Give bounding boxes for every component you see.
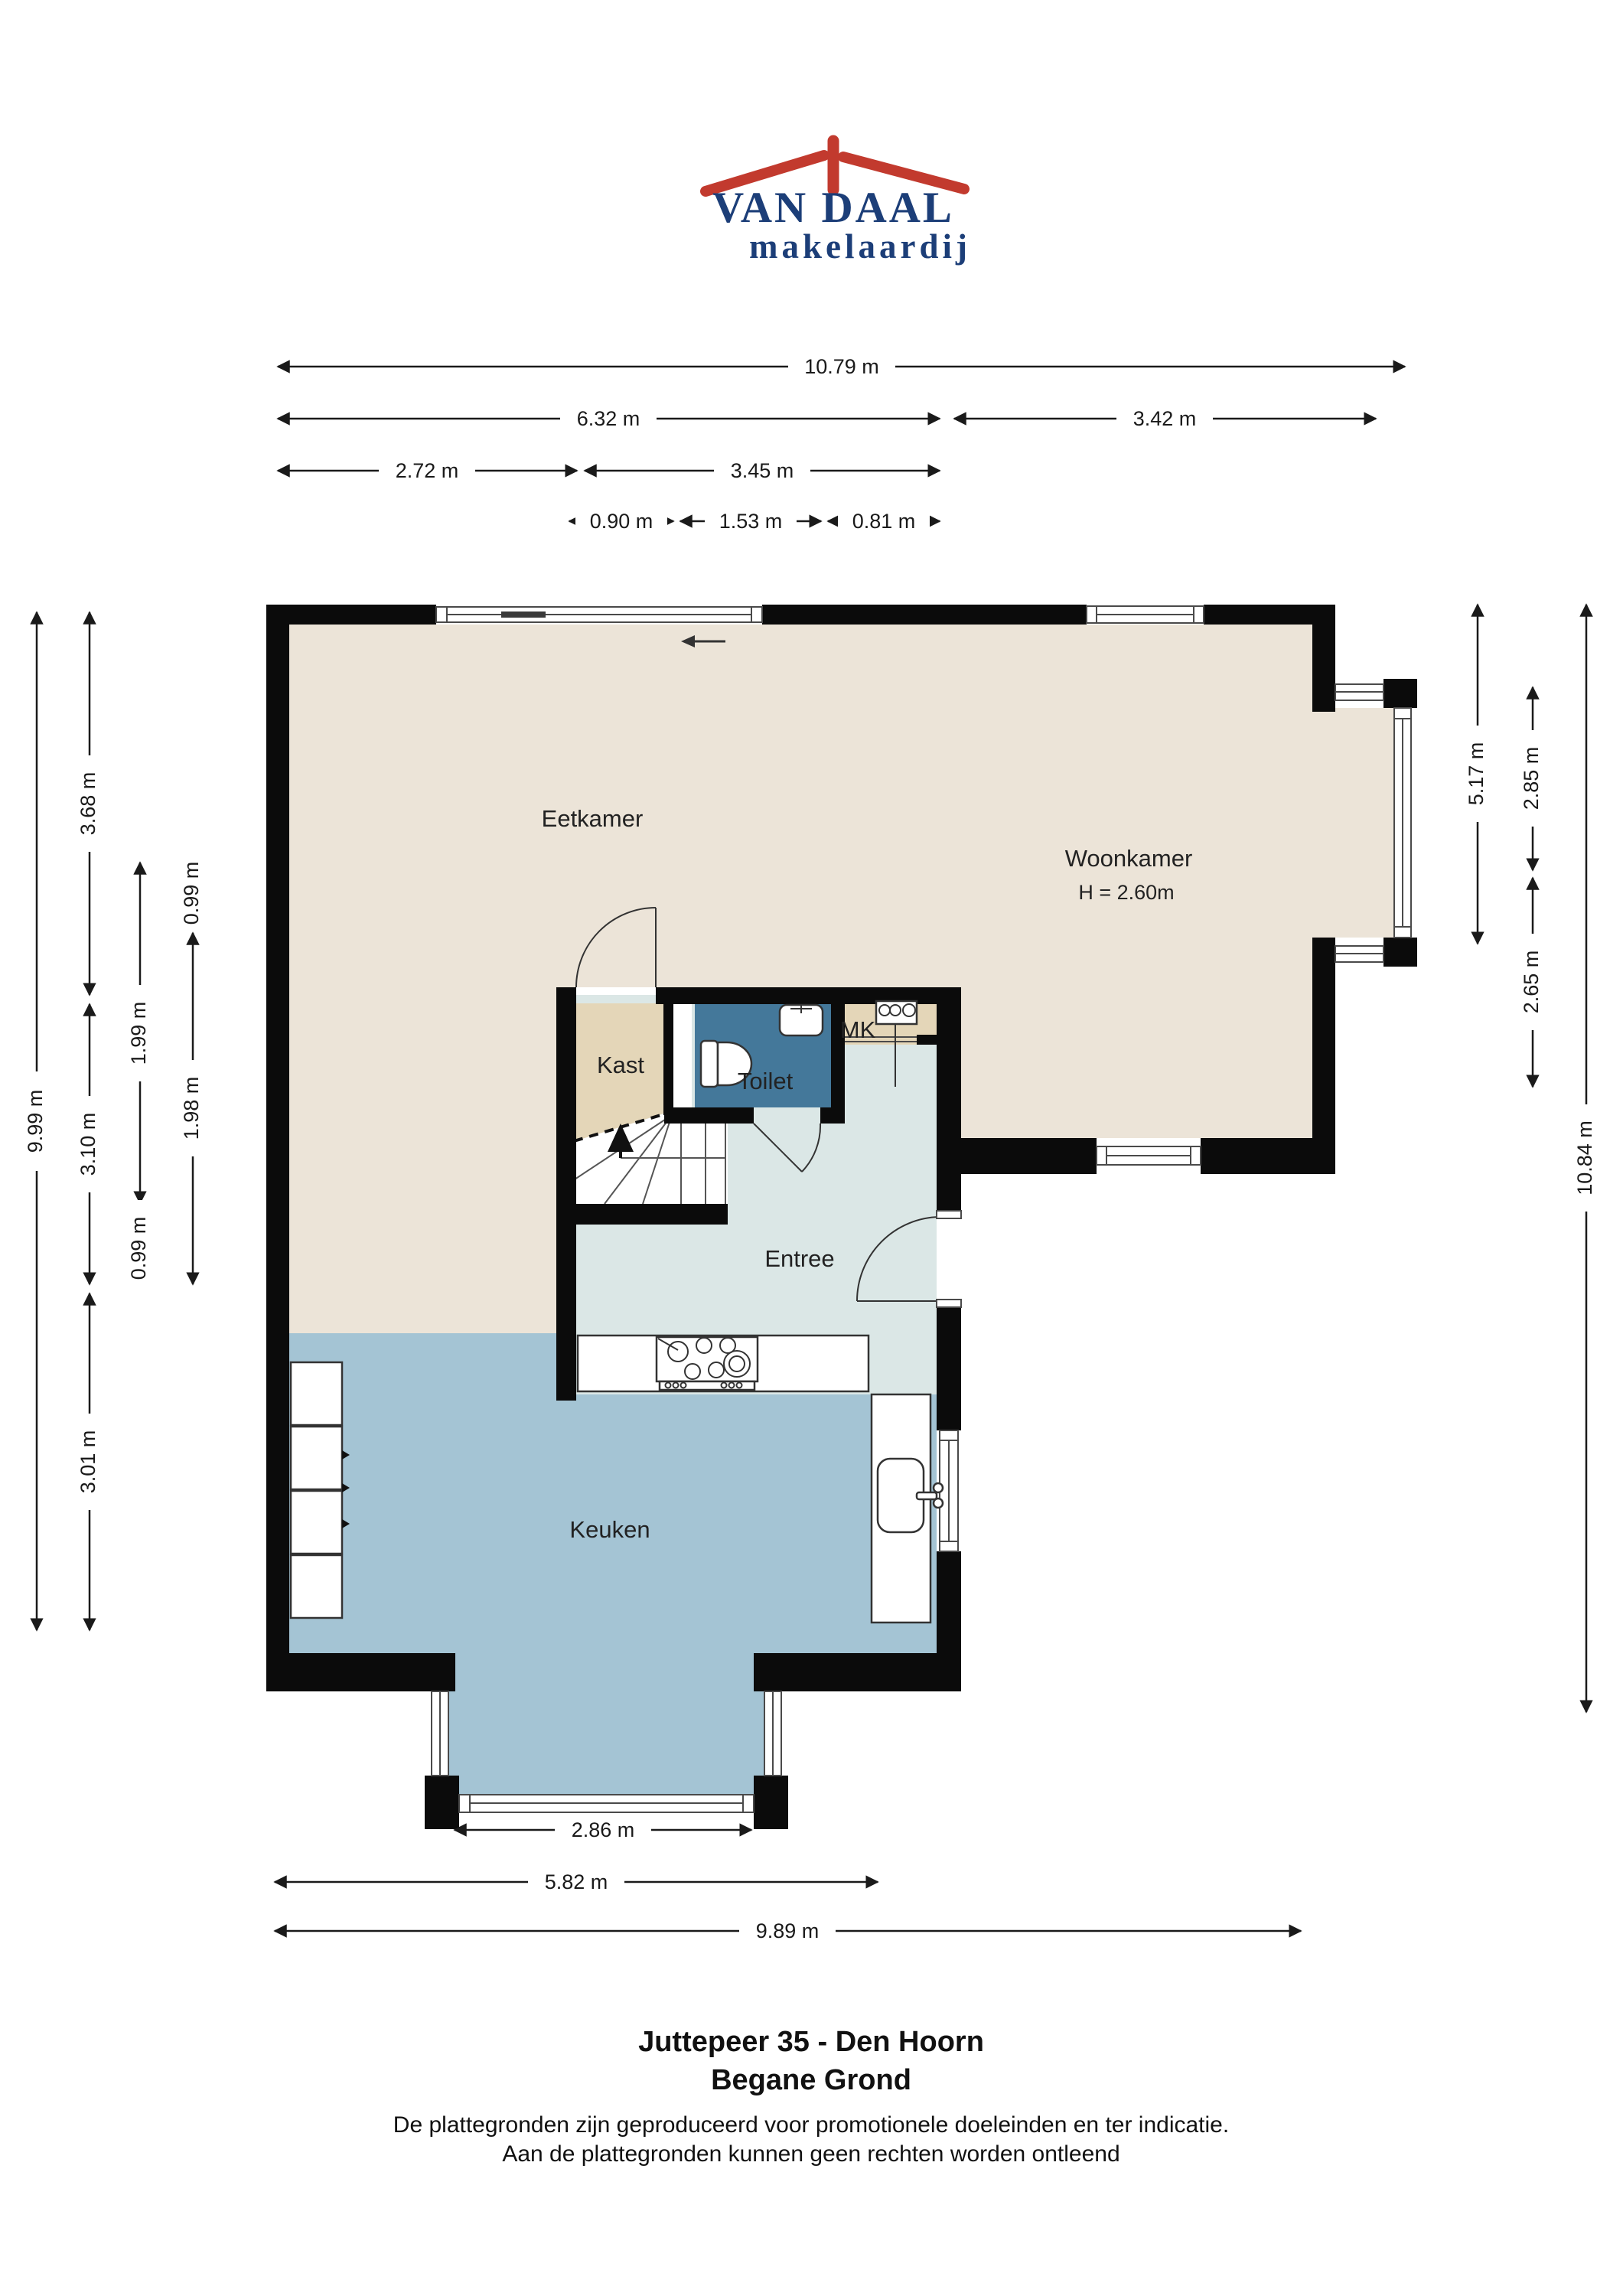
stairs-strip — [673, 1003, 692, 1116]
svg-text:9.89 m: 9.89 m — [756, 1919, 820, 1942]
floorplan-drawing: VAN DAAL makelaardij — [0, 0, 1623, 2296]
dim-left-368: 3.68 m — [77, 612, 103, 995]
dim-bottom-582: 5.82 m — [275, 1869, 878, 1895]
van-daal-logo: VAN DAAL makelaardij — [706, 141, 971, 266]
dim-bottom-989: 9.89 m — [275, 1918, 1301, 1944]
room-label-toilet: Toilet — [738, 1068, 794, 1094]
dim-bottom-286: 2.86 m — [455, 1817, 751, 1843]
dim-top-272: 2.72 m — [278, 458, 577, 484]
logo-line2: makelaardij — [749, 227, 971, 266]
hand-basin-icon — [780, 1005, 823, 1035]
svg-text:3.45 m: 3.45 m — [731, 459, 794, 482]
footer-title-floor: Begane Grond — [711, 2064, 911, 2096]
footer-title-address: Juttepeer 35 - Den Hoorn — [638, 2026, 984, 2058]
dim-left-099b: 0.99 m — [127, 1200, 153, 1296]
floorplan-page: VAN DAAL makelaardij — [0, 0, 1623, 2296]
svg-text:10.79 m: 10.79 m — [804, 355, 879, 378]
svg-text:1.53 m: 1.53 m — [719, 510, 783, 533]
dim-top-right-span: 3.42 m — [954, 406, 1376, 432]
svg-text:0.90 m: 0.90 m — [590, 510, 653, 533]
svg-text:3.68 m: 3.68 m — [77, 772, 99, 836]
dim-top-081: 0.81 m — [828, 508, 940, 534]
dim-left-199: 1.99 m — [127, 863, 153, 1203]
footer-disclaimer-2: Aan de plattegronden kunnen geen rechten… — [502, 2141, 1119, 2167]
svg-text:6.32 m: 6.32 m — [577, 407, 640, 430]
bay-window-floor — [1312, 708, 1394, 938]
svg-text:5.82 m: 5.82 m — [545, 1870, 608, 1893]
dim-top-153: 1.53 m — [680, 508, 821, 534]
dim-left-total: 9.99 m — [24, 612, 50, 1630]
dim-right-285: 2.85 m — [1520, 687, 1546, 870]
logo-line1: VAN DAAL — [712, 184, 954, 232]
top-window-icon — [1087, 606, 1204, 623]
svg-text:1.99 m: 1.99 m — [127, 1002, 150, 1065]
svg-text:9.99 m: 9.99 m — [24, 1090, 47, 1153]
footer-disclaimer-1: De plattegronden zijn geproduceerd voor … — [393, 2112, 1229, 2138]
room-label-eetkamer: Eetkamer — [542, 805, 644, 832]
dim-top-090: 0.90 m — [569, 508, 673, 534]
room-label-keuken: Keuken — [569, 1516, 650, 1543]
svg-text:2.85 m: 2.85 m — [1520, 747, 1543, 810]
svg-text:5.17 m: 5.17 m — [1465, 742, 1488, 806]
svg-text:0.99 m: 0.99 m — [127, 1217, 150, 1280]
svg-text:3.10 m: 3.10 m — [77, 1113, 99, 1176]
dim-right-total: 10.84 m — [1573, 605, 1599, 1712]
room-note-height: H = 2.60m — [1078, 881, 1174, 904]
dim-left-099a: 0.99 m — [180, 845, 206, 941]
dim-top-total: 10.79 m — [278, 354, 1405, 380]
room-label-entree: Entree — [764, 1245, 834, 1272]
svg-text:2.65 m: 2.65 m — [1520, 951, 1543, 1014]
living-bottom-window-icon — [1097, 1146, 1201, 1165]
room-label-mk: MK — [840, 1016, 876, 1043]
room-label-woonkamer: Woonkamer — [1065, 845, 1193, 872]
svg-text:2.86 m: 2.86 m — [572, 1818, 635, 1841]
dim-right-265: 2.65 m — [1520, 878, 1546, 1087]
svg-text:0.81 m: 0.81 m — [852, 510, 916, 533]
svg-text:3.42 m: 3.42 m — [1133, 407, 1197, 430]
dim-left-301: 3.01 m — [77, 1293, 103, 1630]
gas-hob-icon — [657, 1337, 758, 1390]
svg-text:0.99 m: 0.99 m — [180, 862, 203, 925]
svg-text:10.84 m: 10.84 m — [1573, 1120, 1596, 1195]
svg-text:3.01 m: 3.01 m — [77, 1430, 99, 1494]
svg-text:2.72 m: 2.72 m — [396, 459, 459, 482]
kitchen-bay-floor — [448, 1653, 765, 1797]
dim-top-345: 3.45 m — [585, 458, 940, 484]
svg-text:1.98 m: 1.98 m — [180, 1077, 203, 1140]
dim-top-left-span: 6.32 m — [278, 406, 940, 432]
dim-left-310: 3.10 m — [77, 1004, 103, 1284]
dim-right-517: 5.17 m — [1465, 605, 1491, 944]
dim-left-198: 1.98 m — [180, 933, 206, 1284]
meter-board-icon — [876, 1001, 917, 1024]
room-label-kast: Kast — [597, 1052, 644, 1078]
